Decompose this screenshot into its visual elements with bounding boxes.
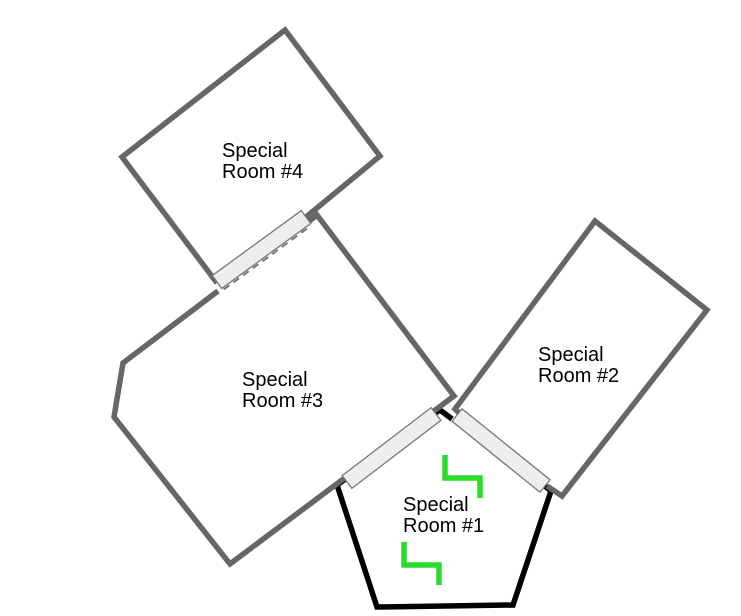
step-marker-2 [404,542,439,585]
floor-plan-canvas: SpecialRoom #1SpecialRoom #2SpecialRoom … [0,0,741,616]
special-room-2-label-line-1: Room #2 [538,365,619,387]
step-marker-1 [445,455,480,498]
floor-plan: SpecialRoom #1SpecialRoom #2SpecialRoom … [0,0,741,616]
special-room-1-label-line-1: Room #1 [403,515,484,537]
special-room-4-label-line-0: Special [222,140,288,162]
door-room1-room3[interactable] [342,408,441,489]
special-room-3-label-line-0: Special [242,369,308,391]
special-room-1-label-line-0: Special [403,494,469,516]
door-room3-room4[interactable] [212,211,312,291]
special-room-4-label-line-1: Room #4 [222,161,303,183]
door-room3-room4-panel[interactable] [212,211,310,289]
special-room-2-label-line-0: Special [538,344,604,366]
special-room-3-label-line-1: Room #3 [242,390,323,412]
door-room1-room3-panel[interactable] [342,408,441,489]
